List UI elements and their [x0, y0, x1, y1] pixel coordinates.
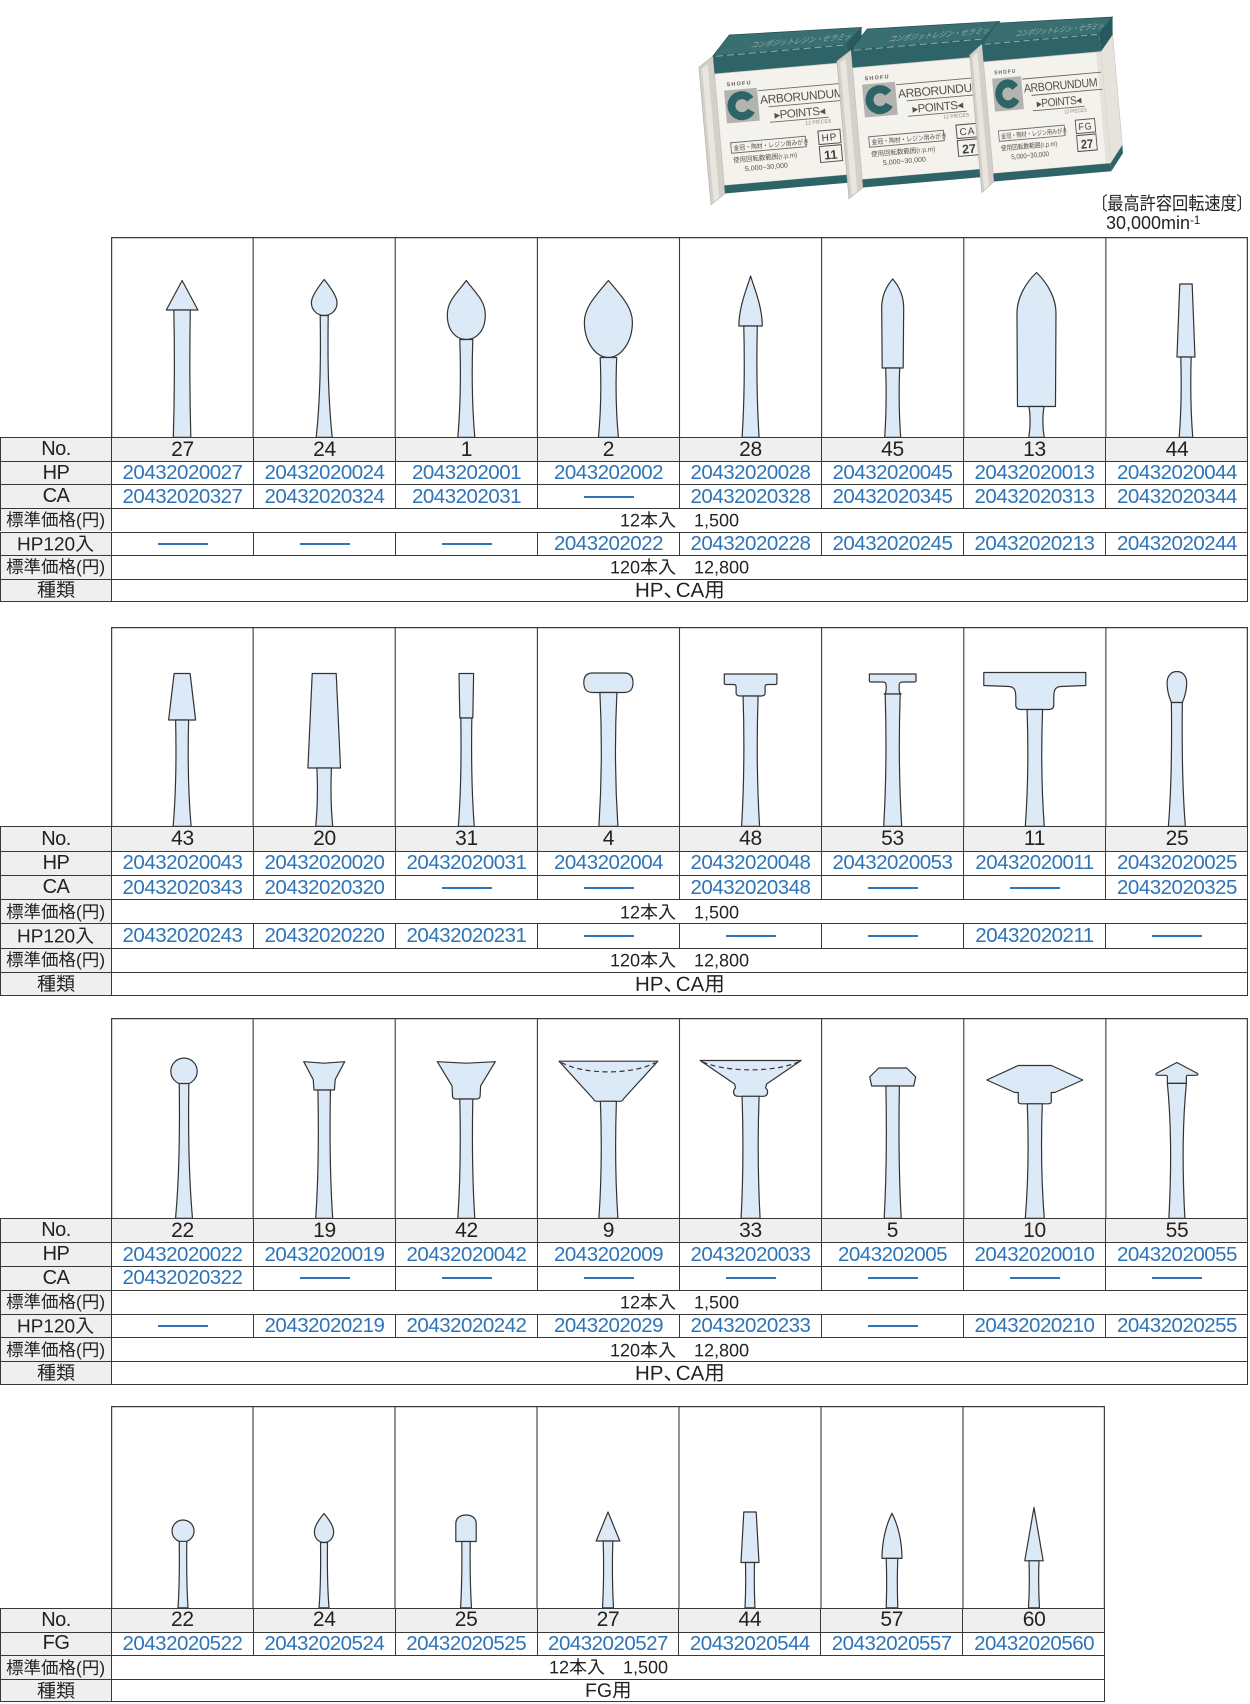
svg-text:27: 27	[1080, 137, 1094, 152]
svg-text:CA: CA	[959, 126, 976, 138]
svg-text:HP: HP	[821, 132, 838, 144]
svg-text:11: 11	[824, 148, 838, 163]
svg-text:FG: FG	[1078, 120, 1093, 133]
svg-text:27: 27	[962, 142, 977, 157]
